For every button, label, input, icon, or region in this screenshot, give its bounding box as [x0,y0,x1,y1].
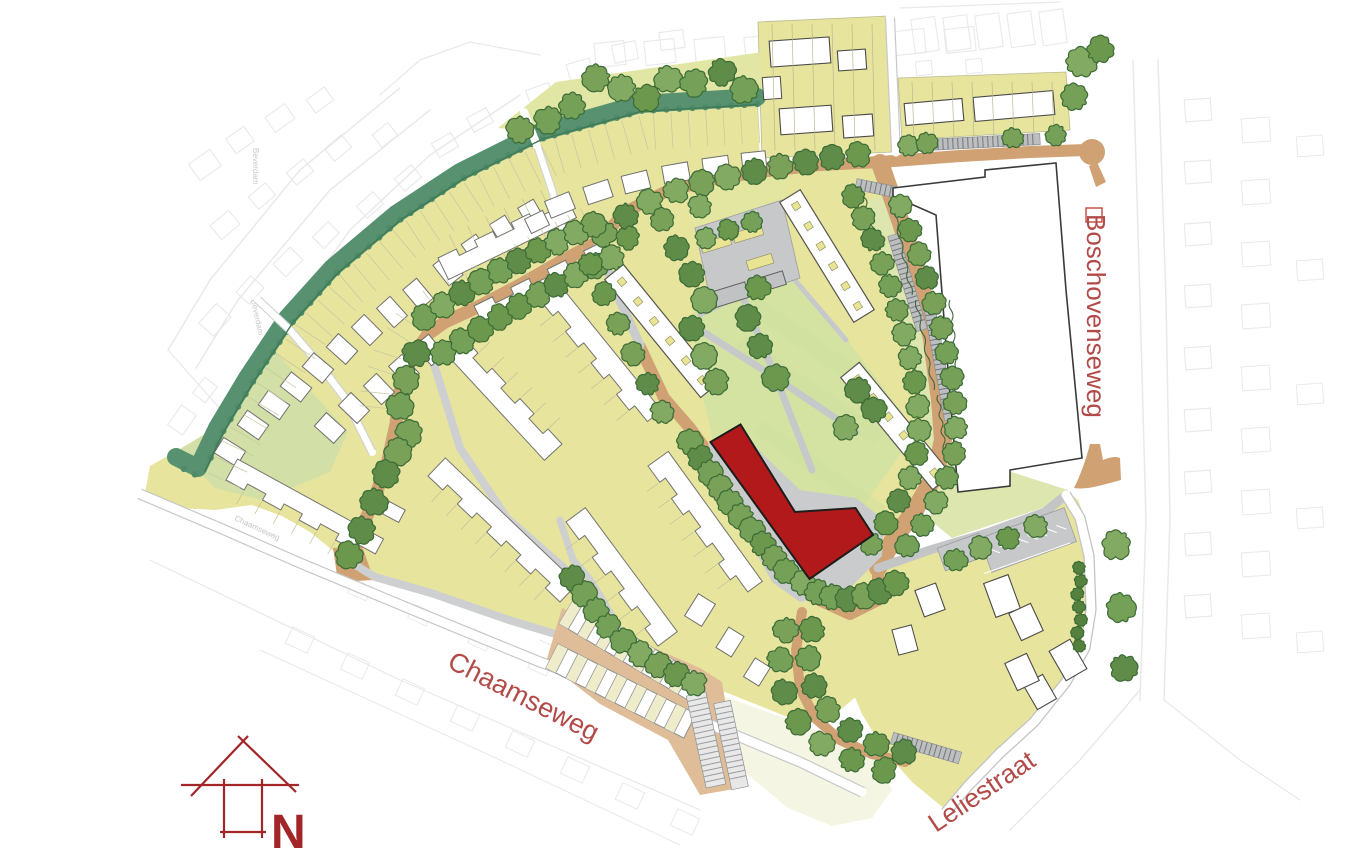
svg-text:Boschovenseweg: Boschovenseweg [1081,214,1111,418]
svg-text:Beverdam: Beverdam [251,148,260,185]
svg-text:N: N [271,806,306,859]
